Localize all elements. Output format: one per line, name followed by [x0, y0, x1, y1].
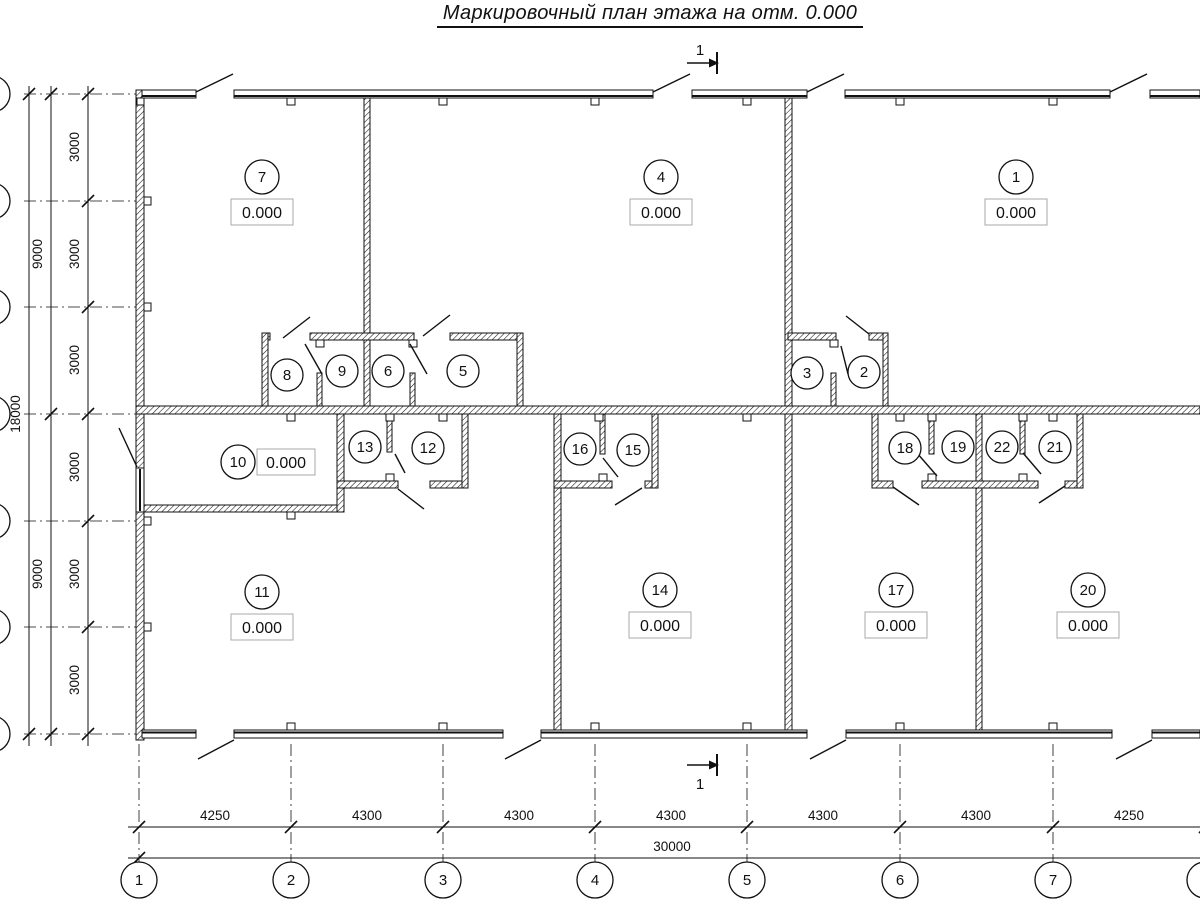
elevation-box-1: 0.000: [985, 199, 1047, 225]
room-mark-11: 11: [245, 575, 279, 609]
dim-label: 3000: [67, 559, 82, 589]
axis-label: 4: [591, 872, 599, 889]
room-number: 15: [625, 442, 642, 459]
dim-label: 3000: [67, 345, 82, 375]
room-mark-19: 19: [942, 431, 974, 463]
elevation-box-14: 0.000: [629, 612, 691, 638]
section-marks: 1 1: [687, 42, 719, 793]
room-number: 4: [657, 169, 665, 186]
room-mark-14: 14: [643, 573, 677, 607]
elevation-value: 0.000: [641, 205, 681, 222]
room-number: 17: [888, 582, 905, 599]
elevation-value: 0.000: [242, 205, 282, 222]
room-mark-16: 16: [564, 433, 596, 465]
axis-bubble-6: 6: [882, 862, 918, 898]
room-marks: 7 4 1 8 9 6 5 3 2 10 13 12 16 15 18 19 2…: [221, 160, 1105, 609]
elevation-box-11: 0.000: [231, 614, 293, 640]
elevation-value: 0.000: [1068, 618, 1108, 635]
dim-label: 4300: [504, 808, 534, 823]
dim-label: 4300: [808, 808, 838, 823]
dim-label: 3000: [67, 239, 82, 269]
room-number: 21: [1047, 439, 1064, 456]
dim-label: 4250: [1114, 808, 1144, 823]
axis-bubble-partial: [1187, 862, 1200, 898]
dim-label: 4250: [200, 808, 230, 823]
room-number: 10: [230, 454, 247, 471]
elevation-value: 0.000: [242, 620, 282, 637]
room-mark-18: 18: [889, 432, 921, 464]
room-mark-2: 2: [848, 356, 880, 388]
room-number: 9: [338, 363, 346, 380]
room-mark-15: 15: [617, 434, 649, 466]
drawing-sheet: Маркировочный план этажа на отм. 0.000: [0, 0, 1200, 900]
dim-group-label: 9000: [30, 239, 45, 269]
room-mark-8: 8: [271, 359, 303, 391]
room-mark-22: 22: [986, 431, 1018, 463]
room-number: 20: [1080, 582, 1097, 599]
room-mark-9: 9: [326, 355, 358, 387]
dim-label: 3000: [67, 132, 82, 162]
room-mark-4: 4: [644, 160, 678, 194]
room-mark-13: 13: [349, 431, 381, 463]
room-number: 6: [384, 363, 392, 380]
room-mark-7: 7: [245, 160, 279, 194]
room-number: 2: [860, 364, 868, 381]
room-number: 22: [994, 439, 1011, 456]
room-number: 11: [254, 584, 270, 601]
room-number: 19: [950, 439, 967, 456]
floor-plan-canvas: 4250 4300 4300 4300 4300 4300 4250 30000: [0, 0, 1200, 900]
dimension-labels-bottom: 4250 4300 4300 4300 4300 4300 4250 30000: [200, 808, 1144, 854]
axis-label: 7: [1049, 872, 1057, 889]
elevation-box-7: 0.000: [231, 199, 293, 225]
room-mark-12: 12: [412, 432, 444, 464]
room-mark-3: 3: [791, 357, 823, 389]
elevation-value: 0.000: [640, 618, 680, 635]
axis-bubbles-left: [0, 76, 10, 752]
axis-bubble-7: 7: [1035, 862, 1071, 898]
dim-group-label: 9000: [30, 559, 45, 589]
elevation-value: 0.000: [996, 205, 1036, 222]
axis-bubble-2: 2: [273, 862, 309, 898]
dimension-lines-left: [23, 86, 136, 746]
axis-bubbles-bottom: 1 2 3 4 5 6 7: [121, 862, 1200, 898]
room-number: 18: [897, 440, 914, 457]
dim-label: 3000: [67, 452, 82, 482]
axis-label: 1: [135, 872, 143, 889]
room-mark-6: 6: [372, 355, 404, 387]
axis-bubble-5: 5: [729, 862, 765, 898]
room-mark-1: 1: [999, 160, 1033, 194]
elevation-value: 0.000: [876, 618, 916, 635]
room-number: 14: [652, 582, 669, 599]
dim-total-label: 30000: [653, 839, 691, 854]
dim-label: 3000: [67, 665, 82, 695]
elevation-value: 0.000: [266, 455, 306, 472]
room-number: 1: [1012, 169, 1020, 186]
room-number: 8: [283, 367, 291, 384]
room-number: 5: [459, 363, 467, 380]
elevation-box-10: 0.000: [257, 449, 315, 475]
room-number: 3: [803, 365, 811, 382]
room-number: 13: [357, 439, 374, 456]
dimension-labels-left: 3000 3000 3000 3000 3000 3000 9000 9000 …: [8, 132, 82, 695]
section-mark-bottom: 1: [687, 754, 719, 793]
room-mark-20: 20: [1071, 573, 1105, 607]
elevation-box-4: 0.000: [630, 199, 692, 225]
axis-label: 2: [287, 872, 295, 889]
room-mark-10: 10: [221, 445, 255, 479]
elevation-box-17: 0.000: [865, 612, 927, 638]
dim-label: 4300: [352, 808, 382, 823]
axis-label: 6: [896, 872, 904, 889]
axis-bubble-3: 3: [425, 862, 461, 898]
room-number: 12: [420, 440, 437, 457]
room-number: 7: [258, 169, 266, 186]
section-label: 1: [696, 776, 704, 793]
elevation-box-20: 0.000: [1057, 612, 1119, 638]
dim-label: 4300: [961, 808, 991, 823]
room-mark-5: 5: [447, 355, 479, 387]
axis-bubble-1: 1: [121, 862, 157, 898]
room-mark-17: 17: [879, 573, 913, 607]
axis-label: 5: [743, 872, 751, 889]
dim-label: 4300: [656, 808, 686, 823]
axis-label: 3: [439, 872, 447, 889]
section-mark-top: 1: [687, 42, 719, 74]
axis-bubble-4: 4: [577, 862, 613, 898]
room-number: 16: [572, 441, 589, 458]
room-mark-21: 21: [1039, 431, 1071, 463]
section-label: 1: [696, 42, 704, 59]
